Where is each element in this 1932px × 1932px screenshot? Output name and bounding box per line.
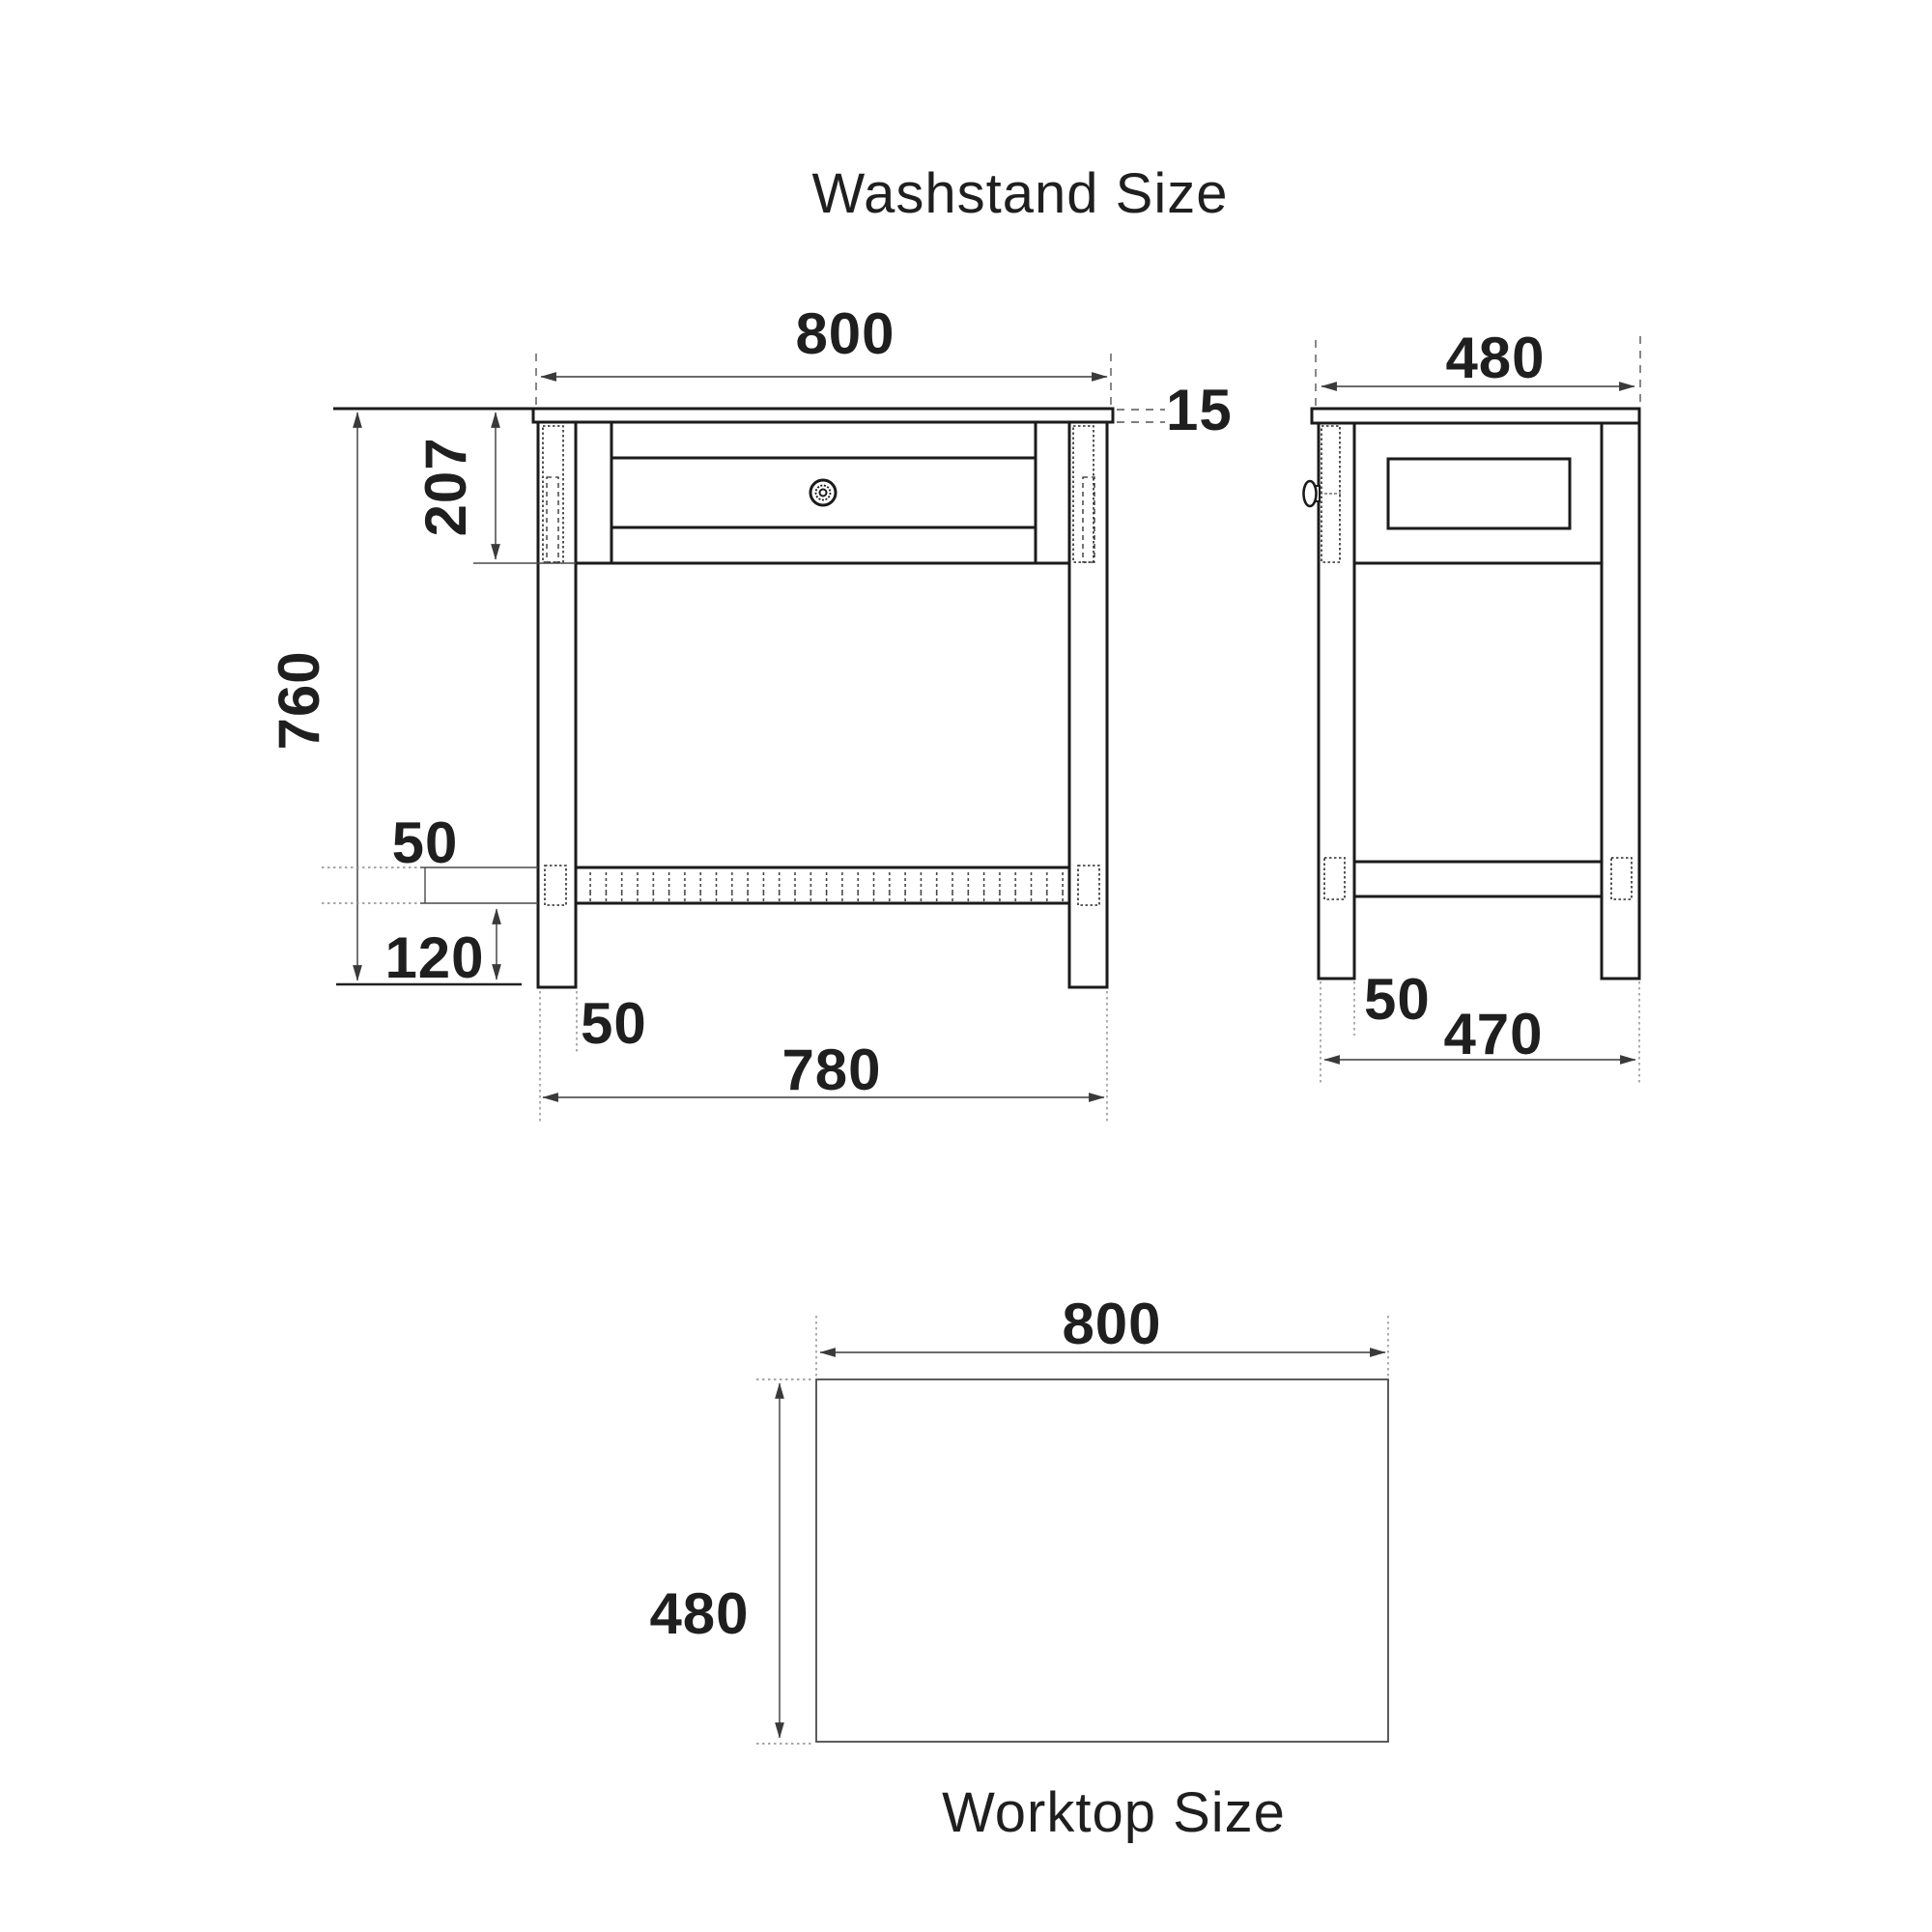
dim-plan-depth: 480 bbox=[649, 1581, 749, 1646]
side-back-leg bbox=[1602, 423, 1639, 979]
dim-front-outer-span: 780 bbox=[781, 1037, 881, 1102]
dim-side-outer-span: 470 bbox=[1443, 1002, 1543, 1066]
dim-front-width: 800 bbox=[795, 301, 895, 366]
drawer-knob bbox=[810, 480, 836, 505]
dim-front-leg-width: 50 bbox=[581, 991, 647, 1056]
technical-drawing-page: Washstand Size bbox=[0, 0, 1932, 1932]
dim-total-height: 760 bbox=[267, 650, 331, 750]
dim-shelf-thickness: 50 bbox=[392, 810, 459, 875]
worktop-plan-view: 800 480 Worktop Size bbox=[649, 1292, 1388, 1844]
dim-side-depth: 480 bbox=[1445, 326, 1545, 390]
dim-worktop-thickness: 15 bbox=[1166, 378, 1233, 442]
front-worktop bbox=[533, 409, 1113, 422]
dim-plan-width: 800 bbox=[1062, 1292, 1161, 1356]
dim-shelf-to-floor: 120 bbox=[384, 925, 484, 990]
front-right-leg bbox=[1069, 422, 1107, 987]
dim-apron-height: 207 bbox=[413, 437, 478, 536]
side-dimensions: 480 50 470 bbox=[1316, 326, 1640, 1086]
side-view bbox=[1304, 409, 1640, 979]
washstand-drawing: Washstand Size bbox=[0, 0, 1932, 1932]
side-panel bbox=[1388, 459, 1570, 528]
side-front-leg bbox=[1319, 423, 1354, 979]
front-left-leg bbox=[538, 422, 576, 987]
worktop-plan-rect bbox=[816, 1379, 1388, 1742]
worktop-title: Worktop Size bbox=[942, 1781, 1286, 1844]
side-worktop bbox=[1312, 409, 1639, 423]
shelf-slats-hatch bbox=[580, 869, 1067, 901]
dim-side-leg-width: 50 bbox=[1364, 967, 1431, 1032]
page-title: Washstand Size bbox=[812, 162, 1229, 225]
